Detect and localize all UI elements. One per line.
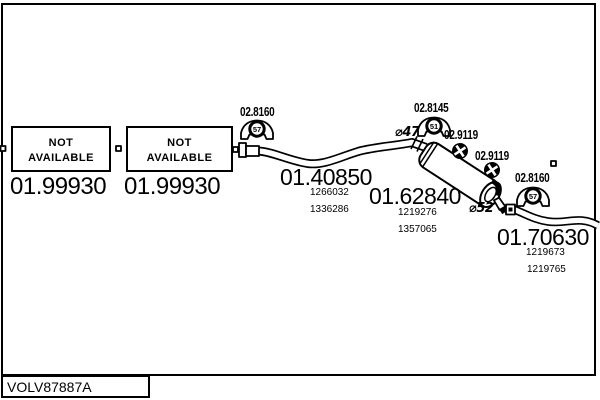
- connector-square: [1, 146, 6, 151]
- clamp-code: 02.8145: [414, 101, 448, 115]
- oe-number: 1336286: [310, 203, 349, 215]
- front-pipe-drawing: [258, 137, 426, 164]
- hanger-code: 02.9119: [444, 128, 478, 142]
- part-code: 01.99930: [124, 173, 220, 201]
- hanger-code: 02.9119: [475, 149, 509, 163]
- clamp-icon: 57: [517, 188, 549, 207]
- diameter-label: ⌀52: [469, 201, 493, 216]
- clamp-size-label: 51: [430, 122, 438, 131]
- not-available-text: AVAILABLE: [13, 151, 109, 166]
- connector-square: [551, 161, 556, 166]
- part-code: 01.99930: [10, 173, 106, 201]
- not-available-text: NOT: [13, 136, 109, 151]
- oe-number: 1266032: [310, 186, 349, 198]
- clamp-code: 02.8160: [515, 171, 549, 185]
- oe-number: 1357065: [398, 223, 437, 235]
- front-pipe-flange-icon: [239, 143, 259, 157]
- oe-number: 1219765: [527, 263, 566, 275]
- connector-square: [233, 147, 238, 152]
- oe-number: 1219276: [398, 206, 437, 218]
- tail-pipe-flange-icon: [506, 205, 515, 215]
- connector-square: [116, 146, 121, 151]
- exhaust-system-diagram: VOLV87887A: [0, 0, 600, 400]
- clamp-size-label: 57: [529, 192, 537, 201]
- not-available-box-2: NOT AVAILABLE: [126, 126, 233, 172]
- clamp-size-label: 57: [253, 125, 261, 134]
- clamp-icon: 57: [241, 121, 273, 140]
- oe-number: 1219673: [526, 246, 565, 258]
- clamp-code: 02.8160: [240, 105, 274, 119]
- not-available-box-1: NOT AVAILABLE: [11, 126, 111, 172]
- not-available-text: AVAILABLE: [128, 151, 231, 166]
- diameter-label: ⌀47: [395, 125, 419, 140]
- not-available-text: NOT: [128, 136, 231, 151]
